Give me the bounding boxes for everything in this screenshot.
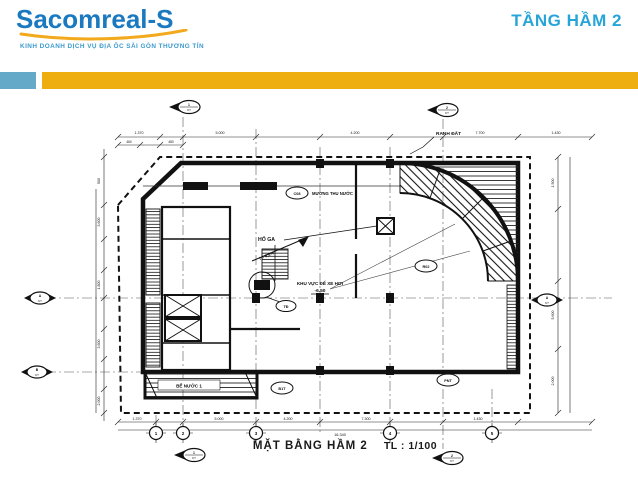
equip-code: TĐ xyxy=(283,305,288,309)
svg-text:1.430: 1.430 xyxy=(474,417,483,421)
svg-text:1.800: 1.800 xyxy=(97,281,101,290)
drain-pit-label: HỐ GA xyxy=(258,236,275,243)
svg-text:KT: KT xyxy=(35,373,39,377)
svg-text:460: 460 xyxy=(126,140,132,144)
section-marker-top-left: 1 KT xyxy=(169,101,200,114)
svg-text:500: 500 xyxy=(97,178,101,184)
water-tank-label: BỂ NƯỚC 1 xyxy=(176,382,202,389)
top-wall-segments xyxy=(143,182,400,190)
channel-label: MƯƠNG THU NƯỚC xyxy=(312,191,353,196)
caption-title: MẶT BẰNG HẦM 2 xyxy=(253,440,368,452)
svg-text:5.600: 5.600 xyxy=(551,311,555,320)
svg-text:16.340: 16.340 xyxy=(334,433,346,437)
svg-text:5.000: 5.000 xyxy=(216,131,225,135)
pump-code: PNT xyxy=(444,379,452,383)
svg-text:1.370: 1.370 xyxy=(133,417,142,421)
svg-text:1.370: 1.370 xyxy=(135,131,144,135)
yellow-accent-bar xyxy=(42,72,638,89)
svg-text:2.000: 2.000 xyxy=(97,397,101,406)
svg-text:1.430: 1.430 xyxy=(552,131,561,135)
ramp-tag: R02 xyxy=(415,260,437,272)
svg-text:1: 1 xyxy=(188,103,190,107)
drain-pit: HỐ GA xyxy=(258,218,394,243)
page-title: TẦNG HẦM 2 xyxy=(511,11,622,31)
ramp-code: R02 xyxy=(423,265,430,269)
channel-code: C08 xyxy=(294,192,301,196)
floor-plan-svg: BỂ NƯỚC 1 HỐ GA i = 6,5% KHU VỰC ĐỂ XE H… xyxy=(0,89,638,479)
level-text: -6.50 xyxy=(315,288,326,294)
svg-text:480: 480 xyxy=(168,140,174,144)
svg-text:3.600: 3.600 xyxy=(97,218,101,227)
svg-text:2: 2 xyxy=(451,454,453,458)
plan-caption: MẶT BẰNG HẦM 2 TL : 1/100 xyxy=(115,440,575,452)
section-marker-left-upper: A KT xyxy=(24,292,56,304)
svg-text:KT: KT xyxy=(192,456,196,460)
slide: { "header": { "brand": "Sacomreal-S", "t… xyxy=(0,0,638,479)
parking-text: KHU VỰC ĐỂ XE HƠI xyxy=(297,280,343,286)
dimensions-right: 1.500 5.600 2.000 xyxy=(551,154,570,416)
svg-text:KT: KT xyxy=(187,108,191,112)
svg-text:KT: KT xyxy=(445,111,449,115)
boundary-text: RANH ĐẤT xyxy=(436,130,461,137)
svg-text:KT: KT xyxy=(38,299,42,303)
floor-plan: BỂ NƯỚC 1 HỐ GA i = 6,5% KHU VỰC ĐỂ XE H… xyxy=(0,89,638,479)
boundary-label: RANH ĐẤT xyxy=(410,130,461,154)
svg-text:KT: KT xyxy=(545,301,549,305)
pump-tag: PNT xyxy=(437,374,459,386)
water-tank: BỂ NƯỚC 1 xyxy=(145,372,257,398)
channel-tag: C08 MƯƠNG THU NƯỚC xyxy=(286,187,353,199)
svg-text:7.300: 7.300 xyxy=(362,417,371,421)
tank-tag: B1T xyxy=(271,382,293,394)
section-marker-top-right: 2 KT xyxy=(427,104,458,117)
section-marker-bottom-right: 2 KT xyxy=(432,452,463,465)
svg-text:7.700: 7.700 xyxy=(476,131,485,135)
svg-text:KT: KT xyxy=(450,459,454,463)
svg-text:4.200: 4.200 xyxy=(284,417,293,421)
caption-scale: TL : 1/100 xyxy=(384,440,437,452)
svg-text:4.200: 4.200 xyxy=(351,131,360,135)
svg-text:3.600: 3.600 xyxy=(97,340,101,349)
svg-text:1.500: 1.500 xyxy=(551,179,555,188)
logo: Sacomreal-S KINH DOANH DỊCH VỤ ĐỊA ỐC SÀ… xyxy=(16,6,246,50)
teal-accent-block xyxy=(0,72,36,89)
dimensions-left: 500 3.600 1.800 3.600 2.000 xyxy=(96,149,107,421)
logo-tagline: KINH DOANH DỊCH VỤ ĐỊA ỐC SÀI GÒN THƯƠNG… xyxy=(20,43,246,50)
tank-code: B1T xyxy=(278,387,286,391)
logo-brand-text: Sacomreal-S xyxy=(16,6,246,32)
svg-text:5.000: 5.000 xyxy=(215,417,224,421)
svg-text:2.000: 2.000 xyxy=(551,377,555,386)
dimensions-top: 1.370 5.000 4.200 7.700 1.430 460 480 xyxy=(115,131,595,148)
section-marker-left-lower: B KT xyxy=(21,366,53,378)
svg-text:2: 2 xyxy=(446,106,448,110)
